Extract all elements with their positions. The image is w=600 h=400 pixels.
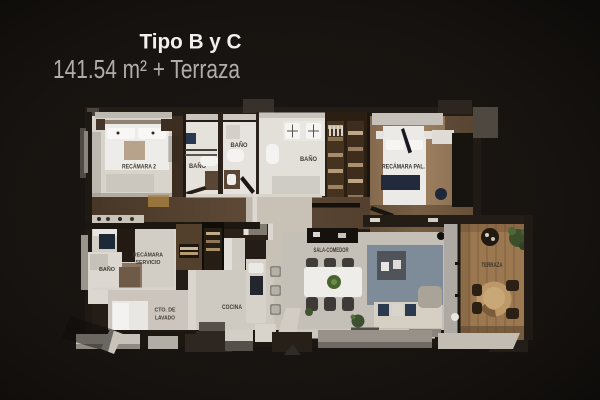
svg-text:RECÁMARA 2: RECÁMARA 2	[122, 164, 157, 171]
svg-text:LAVADO: LAVADO	[155, 316, 175, 322]
svg-text:RECÁMARA: RECÁMARA	[133, 252, 164, 259]
svg-text:COCINA: COCINA	[222, 305, 243, 311]
svg-text:BAÑO: BAÑO	[300, 156, 317, 163]
svg-text:BAÑO: BAÑO	[231, 142, 248, 149]
svg-text:141.54 m² + Terraza: 141.54 m² + Terraza	[53, 56, 241, 84]
svg-text:Tipo B y C: Tipo B y C	[140, 30, 242, 54]
svg-text:TERRAZA: TERRAZA	[482, 263, 503, 269]
svg-text:CTO. DE: CTO. DE	[155, 308, 176, 314]
svg-text:RECÁMARA PAL.: RECÁMARA PAL.	[382, 164, 425, 171]
svg-text:SALA-COMEDOR: SALA-COMEDOR	[314, 248, 349, 254]
svg-text:BAÑO: BAÑO	[99, 266, 115, 273]
svg-text:SERVICIO: SERVICIO	[136, 260, 161, 266]
